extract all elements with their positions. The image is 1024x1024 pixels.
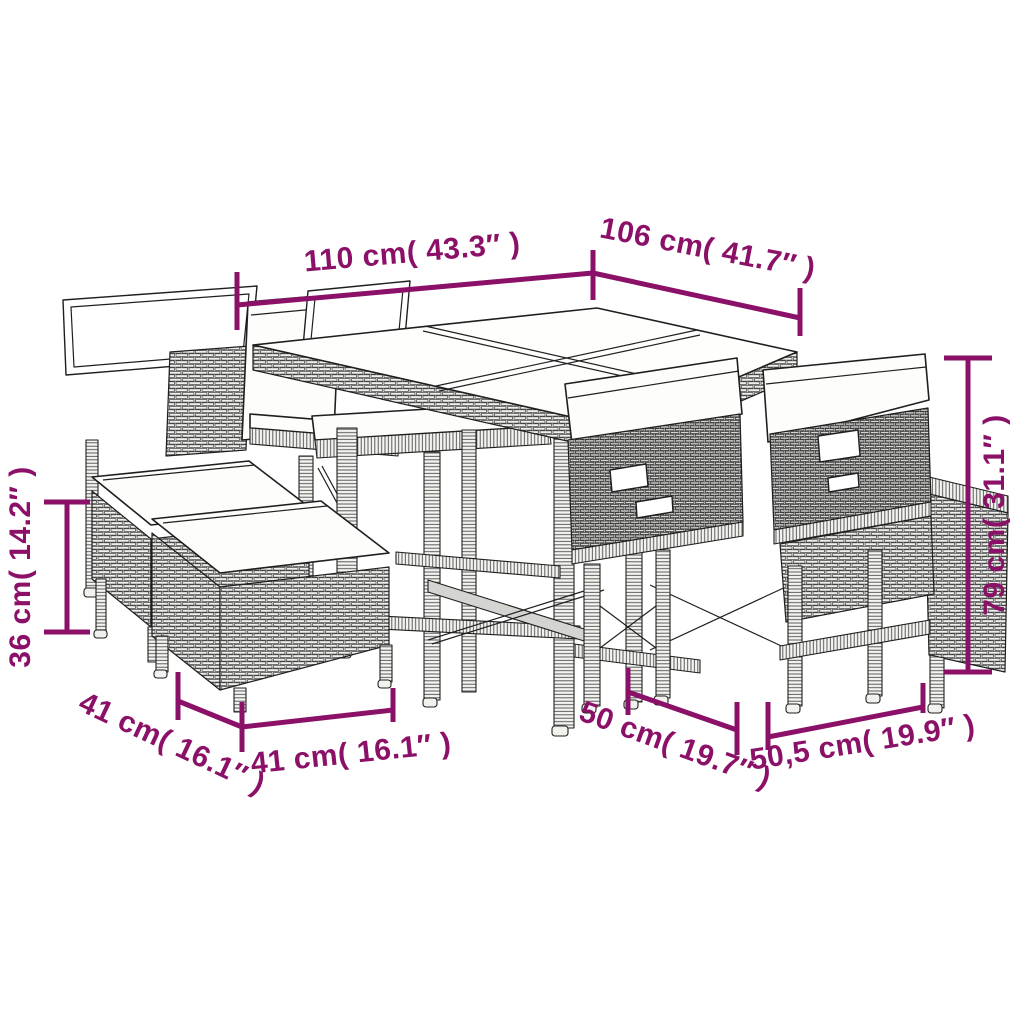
stool-height-label: 36 cm( 14.2″ ) (4, 466, 37, 667)
product-diagram: 110 cm( 43.3″ ) 106 cm( 41.7″ ) 79 cm( 3… (0, 0, 1024, 1024)
chair-height-label: 79 cm( 31.1″ ) (978, 414, 1011, 615)
dimension-diagram-canvas: 110 cm( 43.3″ ) 106 cm( 41.7″ ) 79 cm( 3… (0, 0, 1024, 1024)
chair-right-2 (763, 354, 934, 713)
dimension-chair-depth: 50 cm( 19.7″ ) (575, 668, 776, 795)
ottoman-left-front (152, 501, 392, 712)
dimension-stool-height: 36 cm( 14.2″ ) (4, 466, 90, 667)
table-depth-label: 106 cm( 41.7″ ) (597, 212, 818, 286)
stool-width-label: 41 cm( 16.1″ ) (249, 727, 453, 781)
table-width-label: 110 cm( 43.3″ ) (303, 227, 522, 279)
dimension-stool-width: 41 cm( 16.1″ ) (242, 688, 453, 780)
